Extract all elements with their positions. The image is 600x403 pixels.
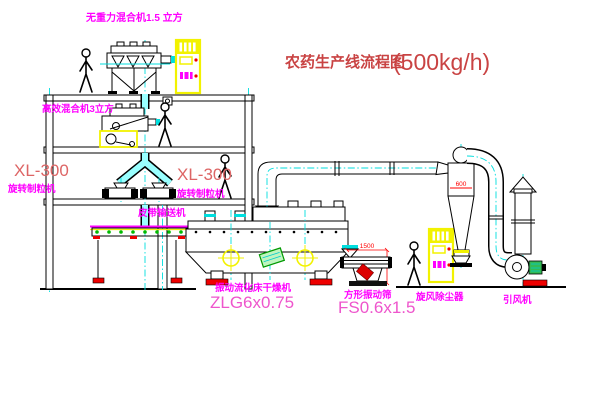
cyclone-label: 旋风除尘器 (415, 291, 464, 303)
induced-draft-fan (505, 255, 547, 286)
worker-figure (80, 49, 92, 92)
control-cabinet-2 (429, 229, 453, 282)
fan-label: 引风机 (503, 294, 532, 306)
granulator-left-name-label: 旋转制粒机 (7, 183, 56, 195)
fluid-bed-dryer (186, 201, 348, 285)
high-eff-mixer-label: 高效混合机3立方 (42, 103, 114, 115)
sieve-dim-label: 1500 (360, 243, 375, 250)
granulator-mid-model-label: XL-300 (177, 165, 232, 184)
page-title: 农药生产线流程图 (284, 53, 405, 71)
granulator-mid-name-label: 旋转制粒机 (176, 188, 225, 200)
worker-figure (408, 242, 420, 285)
sieve-model-label: FS0.6x1.5 (338, 298, 416, 317)
control-cabinet-1 (176, 40, 200, 93)
page-title-capacity: (500kg/h) (393, 49, 490, 75)
gravity-mixer (100, 42, 175, 94)
belt-conveyor-label: 皮带输送机 (137, 207, 186, 219)
ground-lines (40, 287, 566, 289)
worker-figure (159, 103, 171, 146)
dryer-model-label: ZLG6x0.75 (210, 293, 294, 312)
cyclone-dim-label: 600 (456, 181, 467, 188)
vibrating-sieve: 1500 (340, 243, 392, 286)
drawing-canvas: 1500 600 (0, 0, 600, 403)
y-duct (119, 153, 170, 183)
process-flow-diagram: 1500 600 (0, 0, 600, 403)
granulator-left-model-label: XL-300 (14, 161, 69, 180)
gravity-mixer-label: 无重力混合机1.5 立方 (85, 11, 183, 24)
